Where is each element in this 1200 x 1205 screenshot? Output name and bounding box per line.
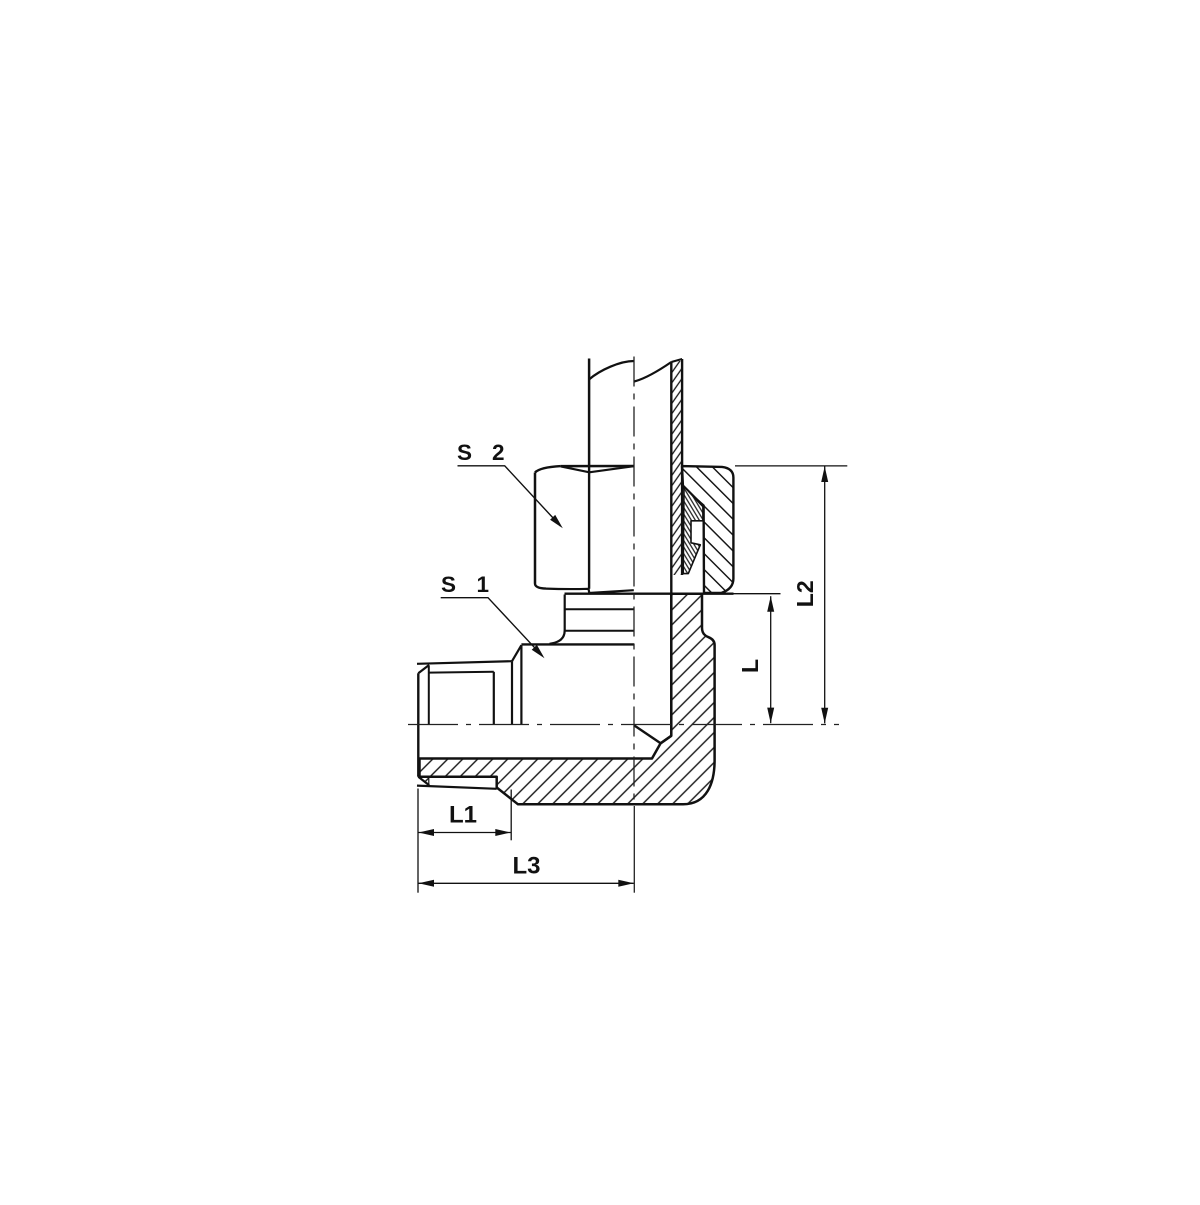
svg-text:L3: L3 — [512, 853, 540, 880]
svg-text:S: S — [441, 572, 456, 597]
svg-text:2: 2 — [492, 440, 505, 465]
svg-text:L2: L2 — [792, 580, 818, 607]
svg-text:L1: L1 — [449, 802, 477, 829]
svg-text:S: S — [457, 440, 472, 465]
svg-text:L: L — [737, 659, 763, 673]
svg-text:1: 1 — [477, 572, 490, 597]
